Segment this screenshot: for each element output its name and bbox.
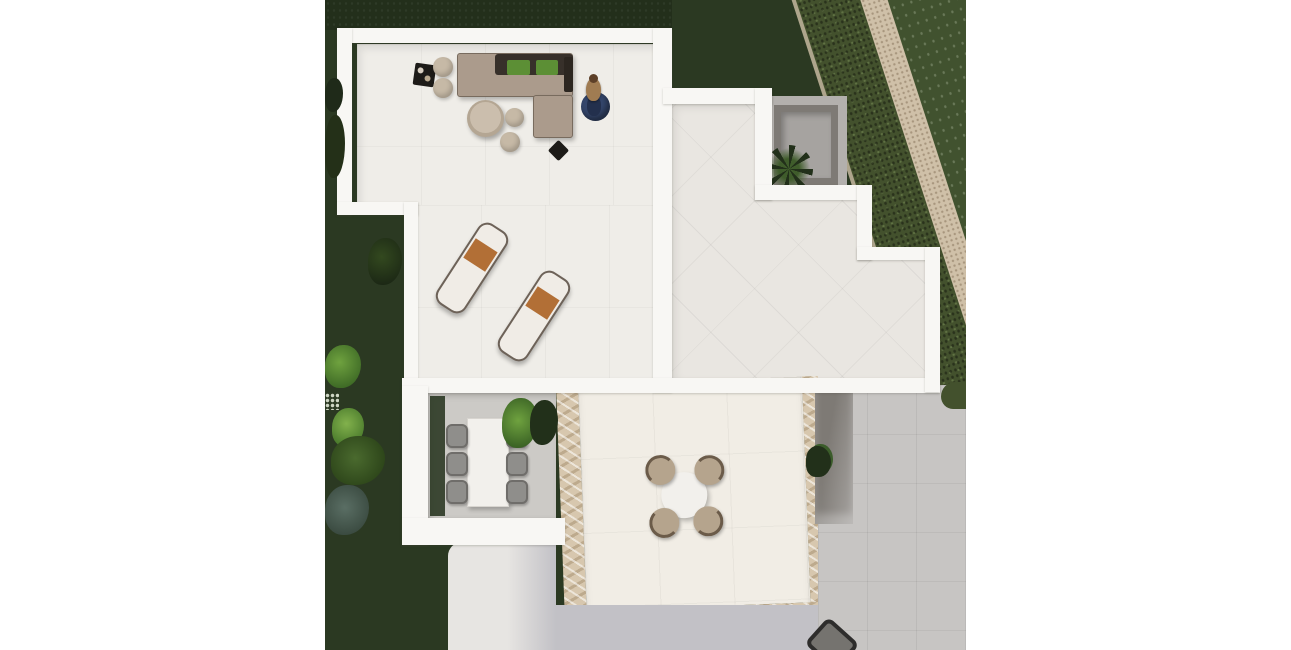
green-pillow [507,60,530,75]
wall-divider [653,28,672,392]
patio-chair [446,424,468,448]
hedge-tip [941,382,966,409]
towel [463,238,497,271]
pouf [433,78,453,98]
towel [525,286,559,319]
garden-plant [368,238,402,285]
paving-below-patio [448,542,556,650]
patio-chair [446,480,468,504]
paving-below-terrace [553,605,818,650]
wall-bottom [402,378,940,393]
cup-icon [424,75,431,82]
wall-topright-b [755,88,772,200]
sofa-throw [564,57,573,92]
patio-chair [506,452,528,476]
patio-grass-strip [430,396,445,516]
wall-topright-f [925,247,940,392]
green-pillow [536,60,558,75]
pouf-small [500,132,520,152]
white-flowers [325,393,339,410]
grass-strip-top [325,0,672,30]
aerial-photo [325,0,966,650]
cup-icon [417,67,424,74]
wall-mid-left [404,202,418,392]
pouf [433,57,453,77]
bush [331,436,385,485]
wall-top [337,28,672,43]
patio-wall-bottom [402,518,565,545]
sofa-chaise [533,95,573,138]
canvas [0,0,1291,650]
dining-terrace [556,376,827,632]
bush [325,345,361,388]
coffee-table-top [470,102,501,133]
patio-chair [446,452,468,476]
wall-topright-c [755,185,872,200]
courtyard-plant-icon [806,446,831,477]
pouf-small [505,108,524,127]
patio-chair [506,480,528,504]
person-head [589,74,598,83]
bush-bluish [325,485,369,535]
